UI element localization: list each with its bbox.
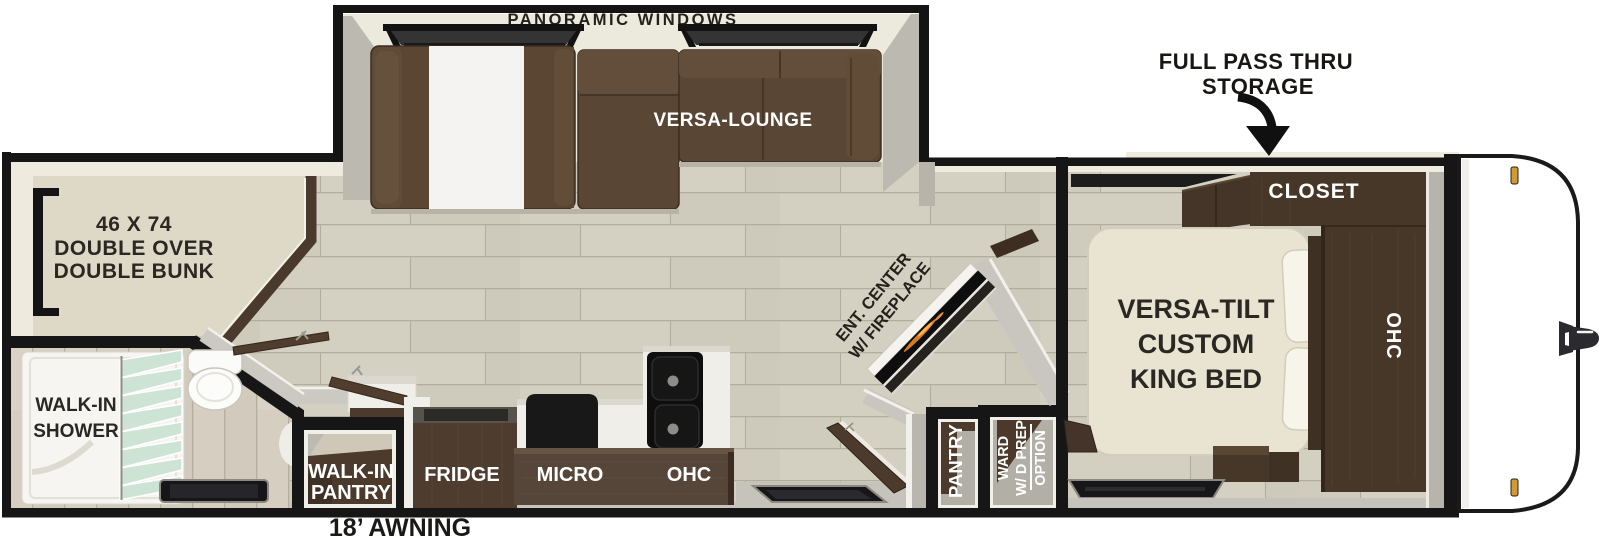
svg-text:PANTRY: PANTRY [945,423,966,498]
svg-text:WALK-IN: WALK-IN [308,461,394,483]
svg-text:OHC: OHC [667,464,711,486]
svg-text:VERSA-TILT: VERSA-TILT [1118,294,1275,324]
svg-text:W/ D PREP: W/ D PREP [1014,420,1030,496]
svg-text:KING BED: KING BED [1130,364,1262,394]
svg-text:CLOSET: CLOSET [1268,180,1359,203]
svg-text:STORAGE: STORAGE [1202,74,1314,99]
svg-text:WALK-IN: WALK-IN [35,395,116,416]
svg-text:VERSA-LOUNGE: VERSA-LOUNGE [653,110,812,131]
svg-text:FULL PASS THRU: FULL PASS THRU [1159,49,1353,74]
svg-text:DOUBLE BUNK: DOUBLE BUNK [54,260,215,283]
svg-text:FRIDGE: FRIDGE [424,464,500,486]
svg-text:CUSTOM: CUSTOM [1138,329,1255,359]
svg-text:18’ AWNING: 18’ AWNING [329,514,471,538]
svg-text:MICRO: MICRO [537,464,604,486]
svg-text:46 X 74: 46 X 74 [96,213,172,236]
svg-text:WARD: WARD [996,436,1012,480]
svg-text:DOUBLE OVER: DOUBLE OVER [54,237,214,260]
svg-text:OPTION: OPTION [1033,430,1049,486]
svg-text:SHOWER: SHOWER [33,421,119,442]
svg-text:PANTRY: PANTRY [311,482,392,504]
svg-text:OHC: OHC [1382,312,1404,359]
